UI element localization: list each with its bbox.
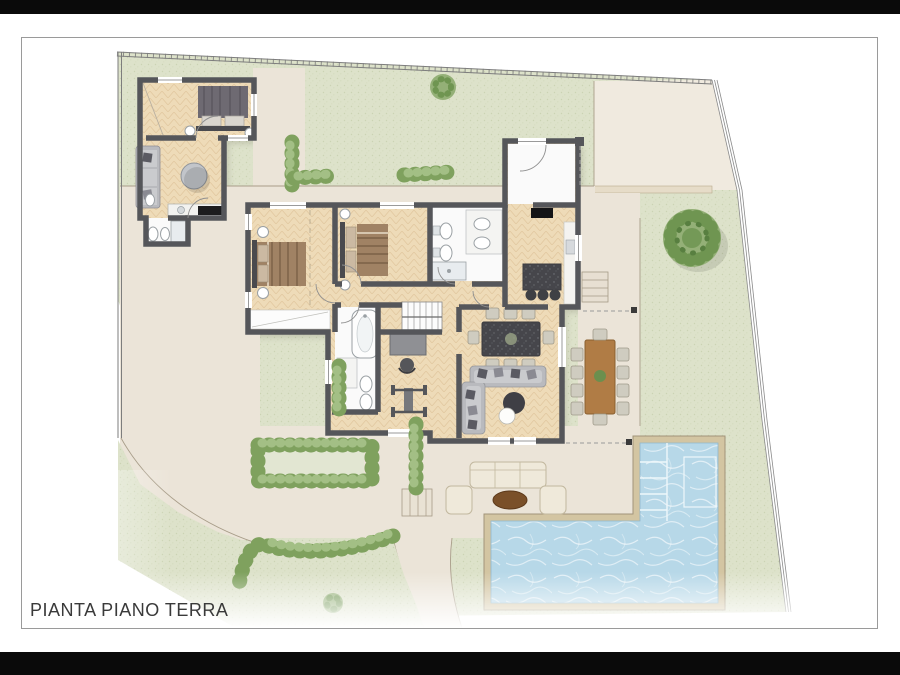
floor-plan-page: PIANTA PIANO TERRA: [0, 0, 900, 675]
vestibule-door-north: [518, 138, 546, 145]
living-window-south-b: [514, 437, 536, 445]
bedroom1-window-west-a: [245, 214, 252, 230]
desk: [390, 333, 426, 355]
outdoor-coffee-table: [493, 491, 527, 509]
vestibule-floor: [508, 144, 575, 204]
staircase: [402, 302, 442, 332]
living-window-east: [558, 327, 566, 367]
desk-chair: [400, 358, 414, 372]
outdoor-steps-east: [582, 272, 608, 302]
gate-post: [575, 137, 584, 146]
bathroom2-window-west: [325, 360, 332, 384]
bedroom1-window-north: [270, 202, 306, 209]
bedroom2-window-north: [380, 202, 414, 209]
bar-stool: [550, 290, 561, 301]
kitchen-island: [523, 264, 561, 290]
tree-small: [430, 74, 456, 100]
bedroom1-wardrobe: [250, 310, 330, 329]
bar-stool: [538, 290, 549, 301]
bar-stool: [526, 290, 537, 301]
kitchen-window-east: [575, 235, 582, 261]
living-window-south-a: [488, 437, 510, 445]
annex-window-east: [251, 94, 257, 116]
annex-window-north: [158, 77, 182, 83]
coffee-table-light: [499, 408, 515, 424]
garden-wall: [578, 186, 712, 193]
annex-kitchenette: [168, 204, 224, 217]
plan-title: PIANTA PIANO TERRA: [30, 600, 228, 621]
site-plan-drawing: [0, 0, 900, 675]
kitchen-sink: [566, 240, 575, 254]
cooktop: [531, 208, 553, 218]
bedroom1-window-west-b: [245, 292, 252, 308]
hedge-ring-inner: [262, 450, 364, 476]
annex-window-south: [228, 135, 248, 141]
kitchen-counter: [564, 222, 576, 304]
